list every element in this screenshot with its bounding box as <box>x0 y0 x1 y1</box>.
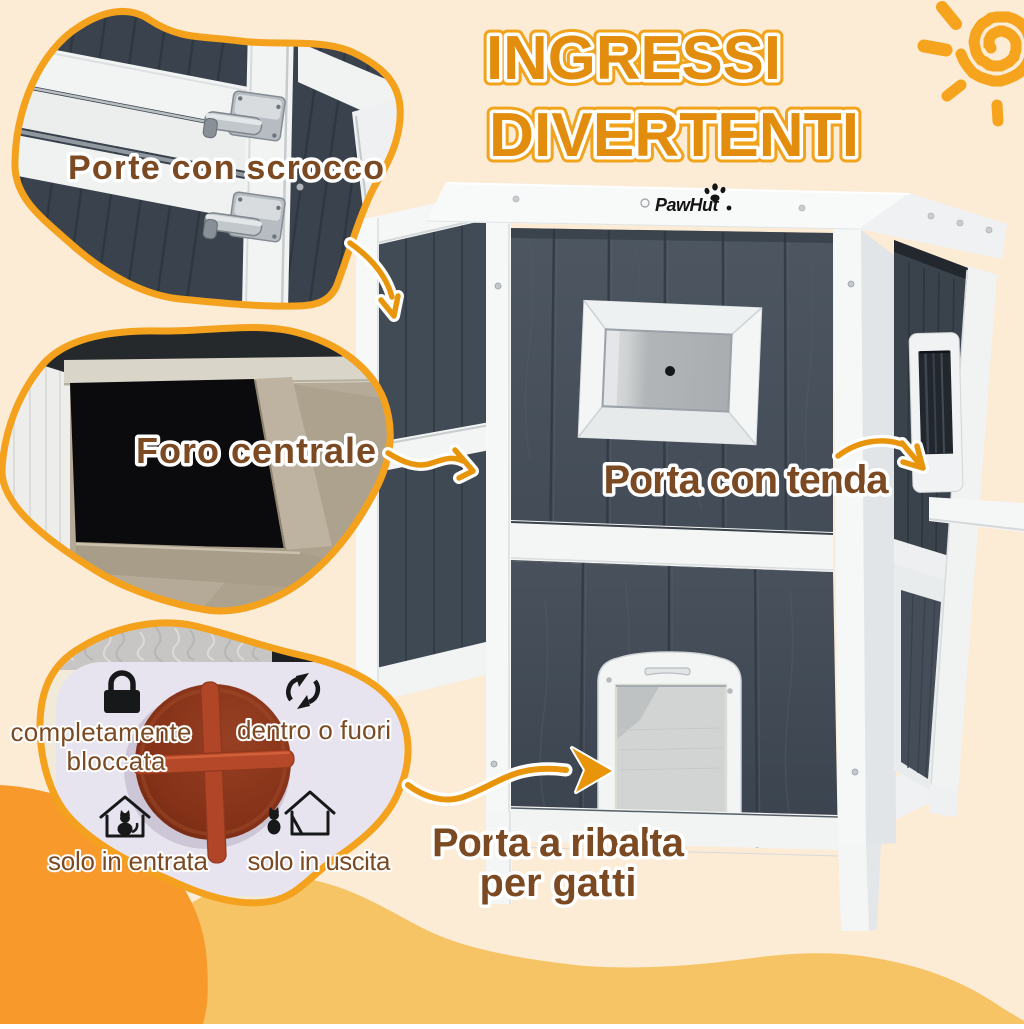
svg-text:per gatti: per gatti <box>480 861 637 905</box>
svg-text:bloccata: bloccata <box>67 746 167 776</box>
svg-text:Porta a ribalta: Porta a ribalta <box>432 821 685 865</box>
svg-text:solo in uscita: solo in uscita <box>248 846 392 876</box>
svg-text:Foro centrale: Foro centrale <box>136 430 376 471</box>
svg-text:completamente: completamente <box>11 717 192 747</box>
svg-text:PawHut: PawHut <box>655 195 720 215</box>
svg-text:INGRESSI: INGRESSI <box>486 24 781 93</box>
svg-text:dentro o fuori: dentro o fuori <box>237 715 391 745</box>
svg-text:Porte con scrocco: Porte con scrocco <box>68 149 384 187</box>
svg-text:solo in entrata: solo in entrata <box>48 846 209 876</box>
svg-text:Porta con tenda: Porta con tenda <box>604 458 890 502</box>
svg-text:DIVERTENTI: DIVERTENTI <box>489 101 859 170</box>
